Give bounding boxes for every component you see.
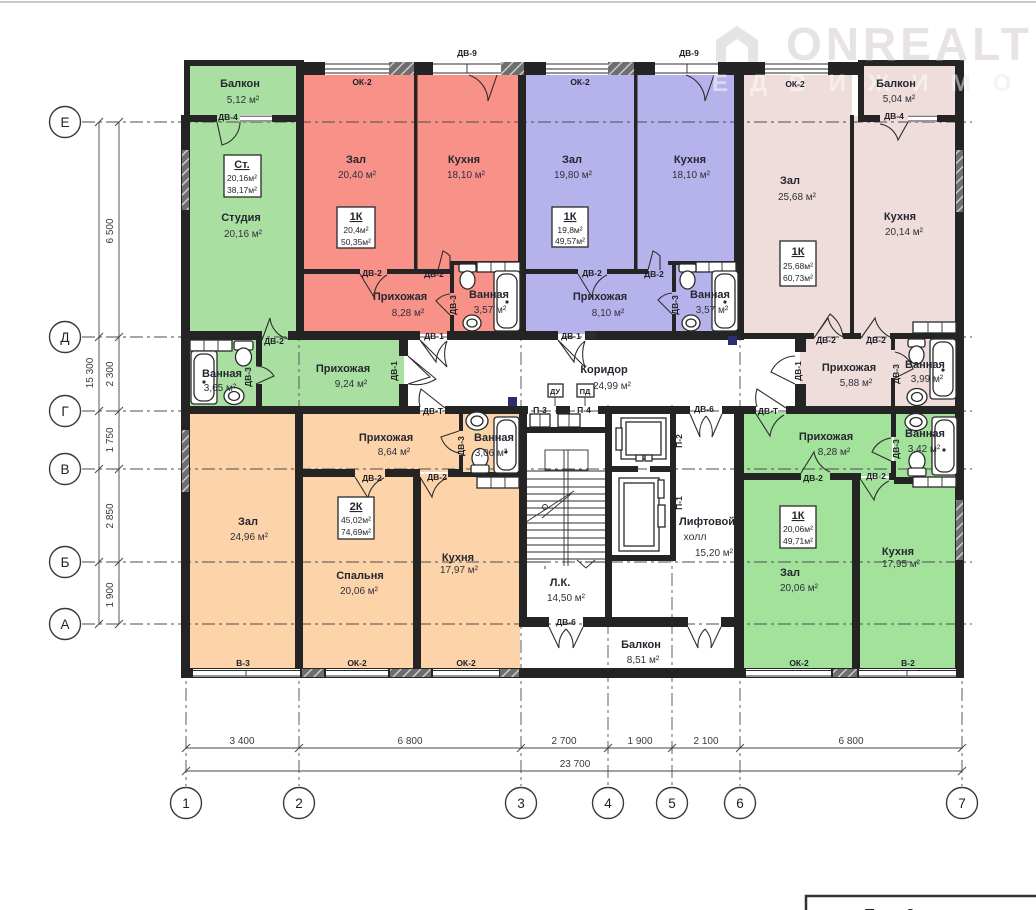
svg-text:49,57м²: 49,57м² <box>555 236 585 246</box>
svg-text:2К: 2К <box>350 501 363 513</box>
svg-text:20,40 м²: 20,40 м² <box>338 170 377 181</box>
svg-text:5: 5 <box>668 796 676 811</box>
svg-text:2 100: 2 100 <box>693 736 718 747</box>
svg-text:Зал: Зал <box>238 516 258 528</box>
svg-text:ДВ-3: ДВ-3 <box>456 436 466 456</box>
svg-text:ДВ-2: ДВ-2 <box>264 336 284 346</box>
svg-text:2 850: 2 850 <box>105 503 116 528</box>
svg-text:ОК-2: ОК-2 <box>785 79 805 89</box>
svg-text:ДВ-4: ДВ-4 <box>884 111 904 121</box>
svg-text:20,14 м²: 20,14 м² <box>885 227 924 238</box>
svg-text:1К: 1К <box>564 211 577 223</box>
svg-text:Ванная: Ванная <box>474 432 514 444</box>
svg-text:Е: Е <box>60 115 69 130</box>
svg-text:3,06 м²: 3,06 м² <box>475 448 508 459</box>
svg-text:ДВ-2: ДВ-2 <box>427 472 447 482</box>
svg-text:ДВ-Т: ДВ-Т <box>423 406 444 416</box>
svg-text:20,16 м²: 20,16 м² <box>224 229 263 240</box>
svg-text:9,24 м²: 9,24 м² <box>335 379 368 390</box>
svg-text:Прихожая: Прихожая <box>799 431 853 443</box>
svg-text:2 300: 2 300 <box>105 361 116 386</box>
svg-text:ДВ-1: ДВ-1 <box>424 331 444 341</box>
svg-text:ДВ-9: ДВ-9 <box>679 48 699 58</box>
svg-text:3,42 м²: 3,42 м² <box>908 444 941 455</box>
svg-text:ДВ-3: ДВ-3 <box>448 295 458 315</box>
svg-text:14,50 м²: 14,50 м² <box>547 593 586 604</box>
svg-text:Ст.: Ст. <box>234 159 249 171</box>
svg-text:ОК-2: ОК-2 <box>789 658 809 668</box>
svg-text:15 300: 15 300 <box>85 357 96 388</box>
svg-text:2: 2 <box>295 796 303 811</box>
svg-text:ПД: ПД <box>580 387 591 396</box>
svg-text:3,57 м²: 3,57 м² <box>474 305 507 316</box>
svg-text:Зал: Зал <box>780 567 800 579</box>
svg-text:ОК-2: ОК-2 <box>347 658 367 668</box>
svg-text:7: 7 <box>958 796 966 811</box>
svg-text:ДВ-3: ДВ-3 <box>891 364 901 384</box>
svg-text:Зал: Зал <box>562 154 582 166</box>
svg-text:1К: 1К <box>792 510 805 522</box>
svg-text:Прихожая: Прихожая <box>573 291 627 303</box>
svg-text:Прихожая: Прихожая <box>316 363 370 375</box>
svg-text:Балкон: Балкон <box>621 639 661 651</box>
svg-text:5,88 м²: 5,88 м² <box>840 378 873 389</box>
svg-text:19,80 м²: 19,80 м² <box>554 170 593 181</box>
svg-text:Балкон: Балкон <box>876 78 916 90</box>
svg-text:ДВ-1: ДВ-1 <box>793 361 803 381</box>
svg-text:Лифтовой: Лифтовой <box>679 516 735 528</box>
svg-text:ДВ-9: ДВ-9 <box>457 48 477 58</box>
svg-text:18,10 м²: 18,10 м² <box>447 170 486 181</box>
svg-text:ДВ-3: ДВ-3 <box>891 439 901 459</box>
svg-text:В-3: В-3 <box>236 658 250 668</box>
svg-text:ОК-2: ОК-2 <box>352 77 372 87</box>
svg-text:1 750: 1 750 <box>105 427 116 452</box>
svg-text:Кухня: Кухня <box>448 154 480 166</box>
svg-text:6 500: 6 500 <box>105 218 116 243</box>
svg-text:3,65 м²: 3,65 м² <box>204 383 237 394</box>
svg-text:60,73м²: 60,73м² <box>783 273 813 283</box>
svg-text:2 700: 2 700 <box>551 736 576 747</box>
svg-text:25,68 м²: 25,68 м² <box>778 192 817 203</box>
svg-text:38,17м²: 38,17м² <box>227 185 257 195</box>
svg-text:6 800: 6 800 <box>397 736 422 747</box>
svg-text:ONREALT: ONREALT <box>786 18 1033 70</box>
svg-text:17,97 м²: 17,97 м² <box>440 565 479 576</box>
svg-text:ДВ-2: ДВ-2 <box>644 269 664 279</box>
svg-text:ДВ-1: ДВ-1 <box>389 361 399 381</box>
svg-text:П-1: П-1 <box>674 496 684 510</box>
svg-text:1К: 1К <box>350 211 363 223</box>
svg-text:20,06 м²: 20,06 м² <box>340 586 379 597</box>
svg-text:ДВ-4: ДВ-4 <box>218 112 238 122</box>
svg-text:50,35м²: 50,35м² <box>341 237 371 247</box>
svg-text:24,96 м²: 24,96 м² <box>230 532 269 543</box>
svg-text:Ванная: Ванная <box>690 289 730 301</box>
svg-text:П-3: П-3 <box>533 405 547 415</box>
svg-text:ДВ-3: ДВ-3 <box>670 295 680 315</box>
svg-text:5,12 м²: 5,12 м² <box>227 95 260 106</box>
svg-text:ДВ-Т: ДВ-Т <box>758 406 779 416</box>
svg-text:5,04 м²: 5,04 м² <box>883 94 916 105</box>
svg-text:А: А <box>60 617 69 632</box>
svg-text:ДВ-2: ДВ-2 <box>362 268 382 278</box>
svg-text:Б: Б <box>61 555 70 570</box>
svg-text:ОК-2: ОК-2 <box>570 77 590 87</box>
svg-text:Ванная: Ванная <box>469 289 509 301</box>
svg-text:ДВ-2: ДВ-2 <box>362 473 382 483</box>
svg-text:П-2: П-2 <box>674 434 684 448</box>
svg-text:20,06 м²: 20,06 м² <box>780 583 819 594</box>
svg-text:25,68м²: 25,68м² <box>783 261 813 271</box>
svg-text:Балкон: Балкон <box>220 78 260 90</box>
svg-text:6 800: 6 800 <box>838 736 863 747</box>
svg-text:Прихожая: Прихожая <box>359 432 413 444</box>
svg-text:ДВ-2: ДВ-2 <box>582 268 602 278</box>
svg-text:20,4м²: 20,4м² <box>343 225 368 235</box>
svg-text:1 900: 1 900 <box>105 582 116 607</box>
svg-text:6: 6 <box>736 796 744 811</box>
svg-text:1 900: 1 900 <box>627 736 652 747</box>
svg-text:17,95 м²: 17,95 м² <box>882 559 921 570</box>
svg-text:Прихожая: Прихожая <box>822 362 876 374</box>
svg-text:Спальня: Спальня <box>336 570 384 582</box>
svg-text:1: 1 <box>182 796 190 811</box>
svg-text:3 400: 3 400 <box>229 736 254 747</box>
svg-text:8,10 м²: 8,10 м² <box>592 308 625 319</box>
svg-text:В: В <box>60 462 69 477</box>
svg-text:ДВ-2: ДВ-2 <box>816 335 836 345</box>
svg-text:19,8м²: 19,8м² <box>557 225 582 235</box>
svg-text:20,16м²: 20,16м² <box>227 173 257 183</box>
svg-text:Зал: Зал <box>780 175 800 187</box>
svg-text:8,28 м²: 8,28 м² <box>818 447 851 458</box>
svg-text:18,10 м²: 18,10 м² <box>672 170 711 181</box>
svg-text:ДВ-2: ДВ-2 <box>866 471 886 481</box>
svg-text:ДУ: ДУ <box>550 387 560 396</box>
svg-text:Студия: Студия <box>221 212 261 224</box>
svg-text:74,69м²: 74,69м² <box>341 527 371 537</box>
svg-text:Коридор: Коридор <box>580 364 628 376</box>
svg-text:ДВ-3: ДВ-3 <box>243 367 253 387</box>
svg-text:ДВ-6: ДВ-6 <box>694 404 714 414</box>
svg-text:холл: холл <box>684 531 707 543</box>
svg-text:23 700: 23 700 <box>560 759 591 770</box>
svg-text:3,99 м²: 3,99 м² <box>911 374 944 385</box>
svg-text:ДВ-6: ДВ-6 <box>556 617 576 627</box>
svg-text:8,51 м²: 8,51 м² <box>627 655 660 666</box>
svg-text:Ванная: Ванная <box>905 428 945 440</box>
svg-text:20,06м²: 20,06м² <box>783 524 813 534</box>
svg-text:1К: 1К <box>792 246 805 258</box>
svg-text:В-2: В-2 <box>901 658 915 668</box>
svg-text:45,02м²: 45,02м² <box>341 515 371 525</box>
svg-text:Ванная: Ванная <box>202 368 242 380</box>
svg-text:3: 3 <box>517 796 525 811</box>
svg-text:Прихожая: Прихожая <box>373 291 427 303</box>
svg-text:Кухня: Кухня <box>442 552 474 564</box>
svg-text:ДВ-2: ДВ-2 <box>866 335 886 345</box>
svg-text:Кухня: Кухня <box>674 154 706 166</box>
svg-text:Л.К.: Л.К. <box>550 577 571 589</box>
svg-text:15,20 м²: 15,20 м² <box>695 548 734 559</box>
svg-text:ЕДВИЖИМО: ЕДВИЖИМО <box>712 70 1033 97</box>
svg-text:Кухня: Кухня <box>884 211 916 223</box>
svg-text:Г: Г <box>61 404 69 419</box>
svg-text:ОК-2: ОК-2 <box>456 658 476 668</box>
svg-text:П-4: П-4 <box>577 405 591 415</box>
svg-text:Д: Д <box>60 330 69 345</box>
svg-text:49,71м²: 49,71м² <box>783 536 813 546</box>
svg-text:8,28 м²: 8,28 м² <box>392 308 425 319</box>
svg-text:8,64 м²: 8,64 м² <box>378 447 411 458</box>
svg-text:3,57 м²: 3,57 м² <box>696 305 729 316</box>
svg-text:ДВ-1: ДВ-1 <box>561 331 581 341</box>
svg-text:ДВ-2: ДВ-2 <box>424 269 444 279</box>
svg-text:Зал: Зал <box>346 154 366 166</box>
svg-text:Ванная: Ванная <box>905 359 945 371</box>
svg-text:План 2-о этажа: План 2-о этажа <box>864 906 976 910</box>
svg-text:Кухня: Кухня <box>882 546 914 558</box>
svg-text:ДВ-2: ДВ-2 <box>803 473 823 483</box>
svg-text:24,99 м²: 24,99 м² <box>593 381 632 392</box>
svg-text:4: 4 <box>604 796 612 811</box>
